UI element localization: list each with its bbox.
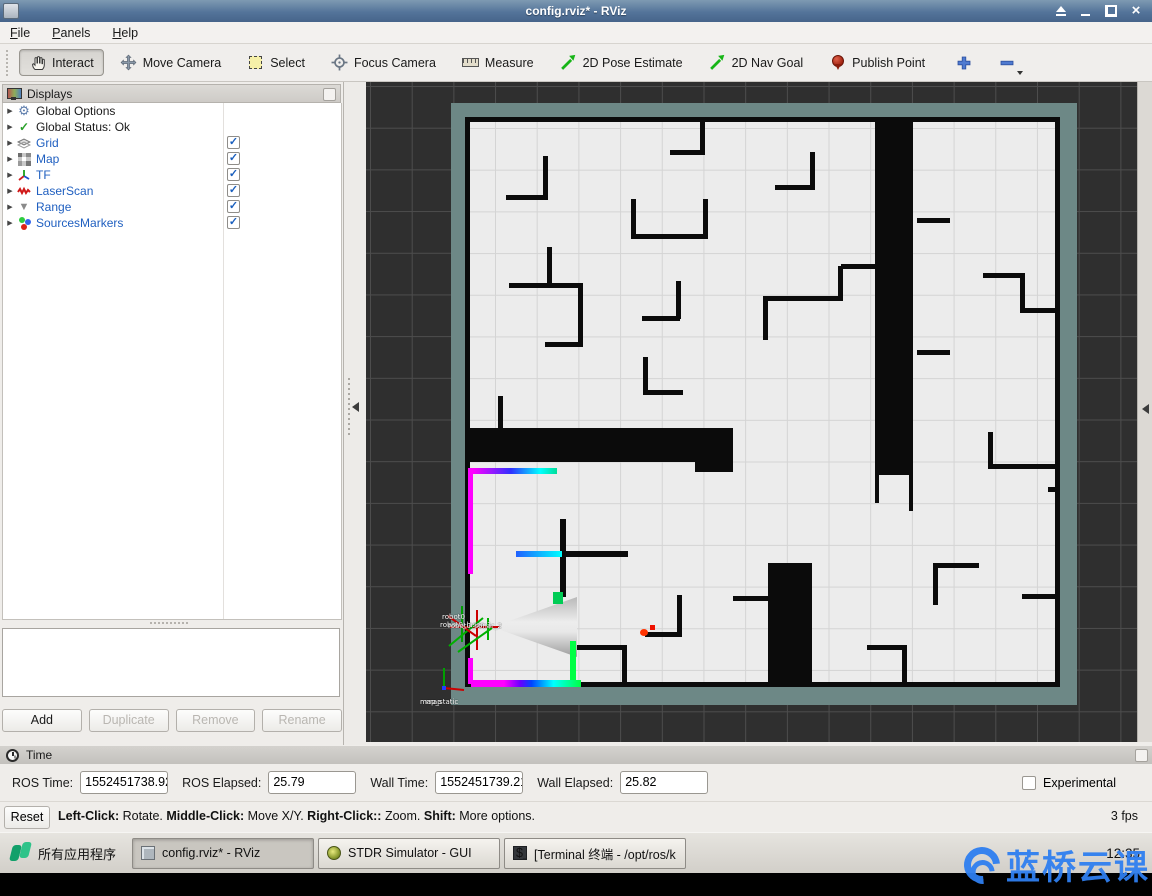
task-stdr-simulator-g[interactable]: STDR Simulator - GUI (318, 838, 500, 869)
map-wall (775, 185, 815, 190)
tool-2d-pose-estimate[interactable]: 2D Pose Estimate (550, 49, 693, 76)
map-wall (506, 195, 548, 200)
display-label: Range (36, 200, 71, 214)
map-wall (509, 283, 583, 288)
map-wall (622, 645, 627, 687)
task-label: STDR Simulator - GUI (348, 846, 472, 860)
tool-move-camera[interactable]: Move Camera (110, 49, 232, 76)
tf-frame-label: robot0 (442, 613, 465, 621)
status-bar: Reset Left-Click: Rotate. Middle-Click: … (0, 801, 1152, 832)
experimental-checkbox[interactable] (1022, 776, 1036, 790)
display-row-laserscan[interactable]: ▶LaserScan✓ (3, 183, 341, 199)
expander-icon[interactable]: ▶ (3, 219, 17, 227)
map-wall (838, 266, 843, 301)
map-wall (983, 273, 1025, 278)
map-wall (867, 645, 907, 650)
time-field-input[interactable]: 1552451738.92 (80, 771, 168, 794)
tool-label: Publish Point (852, 56, 925, 70)
time-panel-float-button[interactable] (1135, 749, 1148, 762)
display-row-grid[interactable]: ▶Grid✓ (3, 135, 341, 151)
map-wall (631, 234, 708, 239)
map-wall (547, 247, 552, 287)
tf-frame-label: robot0_sonar_2 (448, 622, 502, 630)
menu-panels[interactable]: Panels (52, 26, 90, 40)
map-wall (670, 150, 704, 155)
map-wall (768, 563, 812, 687)
tool-label: Move Camera (143, 56, 222, 70)
laser-icon (17, 185, 31, 198)
tool-label: Interact (52, 56, 94, 70)
range-icon: ▼ (17, 201, 31, 214)
map-wall (467, 428, 733, 462)
display-row-global-status-ok[interactable]: ▶✓Global Status: Ok (3, 119, 341, 135)
map-wall (676, 281, 681, 319)
minimize-icon[interactable] (1080, 5, 1092, 17)
3d-viewport[interactable]: robot0robot0_laser_1robot0_sonar_2 mapma… (366, 82, 1137, 742)
green-arrow-icon (560, 54, 577, 71)
display-label: Global Status: Ok (36, 120, 130, 134)
laser-scan-points (553, 592, 563, 604)
hand-icon (29, 54, 46, 71)
map-wall (1048, 487, 1060, 492)
clock-icon (6, 749, 19, 762)
time-field-ros-time: ROS Time:1552451738.92 (12, 771, 168, 794)
map-wall (917, 350, 950, 355)
experimental-label: Experimental (1043, 776, 1116, 790)
time-field-label: Wall Time: (370, 776, 428, 790)
time-field-wall-elapsed: Wall Elapsed:25.82 (537, 771, 708, 794)
expander-icon[interactable]: ▶ (3, 187, 17, 195)
map-wall (1022, 594, 1060, 599)
tf-icon (17, 169, 31, 182)
markers-icon (17, 217, 31, 230)
applications-logo-icon[interactable] (8, 841, 34, 865)
time-field-input[interactable]: 25.79 (268, 771, 356, 794)
applications-menu[interactable]: 所有应用程序 (38, 844, 116, 863)
select-icon (247, 54, 264, 71)
expander-icon[interactable]: ▶ (3, 203, 17, 211)
map-wall (763, 298, 768, 340)
map-wall (643, 390, 683, 395)
display-label: LaserScan (36, 184, 93, 198)
laser-scan-points (473, 468, 557, 474)
display-enabled-checkbox[interactable]: ✓ (227, 152, 240, 165)
map-wall (631, 199, 636, 239)
displays-icon (7, 88, 21, 100)
stdr-icon (327, 846, 341, 860)
display-row-sourcesmarkers[interactable]: ▶SourcesMarkers✓ (3, 215, 341, 231)
display-row-tf[interactable]: ▶TF✓ (3, 167, 341, 183)
map-wall (933, 563, 938, 605)
display-enabled-checkbox[interactable]: ✓ (227, 168, 240, 181)
laser-scan-points (471, 680, 581, 687)
gear-icon: ⚙ (17, 105, 31, 118)
rviz-icon (141, 846, 155, 860)
laser-scan-points (650, 625, 655, 630)
time-field-label: Wall Elapsed: (537, 776, 613, 790)
displays-panel-header[interactable]: Displays (2, 84, 341, 103)
expander-icon[interactable]: ▶ (3, 155, 17, 163)
display-label: Map (36, 152, 59, 166)
displays-panel: Displays ▶⚙Global Options▶✓Global Status… (0, 82, 344, 745)
map-wall (733, 596, 769, 601)
toolbar-drag-handle[interactable] (4, 50, 11, 76)
tool-label: Focus Camera (354, 56, 436, 70)
right-splitter[interactable] (1137, 82, 1152, 742)
watermark-logo-icon (957, 839, 1008, 890)
map-wall (645, 632, 682, 637)
displays-tree: ▶⚙Global Options▶✓Global Status: Ok▶Grid… (2, 103, 342, 620)
map-wall (933, 563, 979, 568)
time-field-label: ROS Time: (12, 776, 73, 790)
tool-select[interactable]: Select (237, 49, 315, 76)
expander-icon[interactable]: ▶ (3, 107, 17, 115)
green-arrow-icon (709, 54, 726, 71)
time-field-input[interactable]: 1552451739.21 (435, 771, 523, 794)
tf-frame-label: map_static (420, 698, 458, 706)
map-wall (703, 199, 708, 239)
map-wall (875, 117, 913, 475)
laser-scan-points (468, 468, 473, 574)
menu-file[interactable]: File (10, 26, 30, 40)
expander-icon[interactable]: ▶ (3, 139, 17, 147)
task-config-rviz-rvi[interactable]: config.rviz* - RViz (132, 838, 314, 869)
time-panel-title: Time (26, 748, 52, 762)
tool-publish-point[interactable]: Publish Point (819, 49, 935, 76)
task-label: config.rviz* - RViz (162, 846, 260, 860)
tool-interact[interactable]: Interact (19, 49, 104, 76)
focus-icon (331, 54, 348, 71)
duplicate-button: Duplicate (89, 709, 169, 732)
menu-help[interactable]: Help (112, 26, 138, 40)
time-field-label: ROS Elapsed: (182, 776, 261, 790)
map-wall (578, 285, 583, 347)
description-splitter-handle[interactable] (150, 621, 190, 626)
move-icon (120, 54, 137, 71)
time-field-ros-elapsed: ROS Elapsed:25.79 (182, 771, 356, 794)
mouse-help-text: Left-Click: Rotate. Middle-Click: Move X… (58, 809, 535, 823)
display-label: Grid (36, 136, 59, 150)
map-wall (642, 316, 680, 321)
map-wall (917, 218, 950, 223)
map-wall (498, 396, 503, 428)
tool-label: Select (270, 56, 305, 70)
map-tf-axes (440, 666, 466, 692)
time-field-input[interactable]: 25.82 (620, 771, 708, 794)
collapse-right-arrow-icon[interactable] (1142, 404, 1149, 414)
tool-focus-camera[interactable]: Focus Camera (321, 49, 446, 76)
pin-icon (829, 54, 846, 71)
map-icon (17, 153, 31, 166)
time-field-wall-time: Wall Time:1552451739.21 (370, 771, 523, 794)
map-wall (902, 645, 907, 687)
title-bar: config.rviz* - RViz × (0, 0, 1152, 22)
map-wall (988, 464, 1058, 469)
map-wall (875, 475, 879, 503)
map-wall (841, 264, 875, 269)
time-panel-header[interactable]: Time (0, 745, 1152, 764)
task-label: [Terminal 终端 - /opt/ros/k… (534, 844, 677, 863)
grid-icon (17, 137, 31, 150)
map-wall (1020, 273, 1025, 313)
map-wall (560, 519, 566, 597)
map-wall (543, 156, 548, 200)
task-terminal-op[interactable]: $_[Terminal 终端 - /opt/ros/k… (504, 838, 686, 869)
measure-icon (462, 54, 479, 71)
laser-scan-points (640, 629, 648, 636)
rename-button: Rename (262, 709, 342, 732)
display-enabled-checkbox[interactable]: ✓ (227, 200, 240, 213)
watermark: 蓝桥云课 (964, 840, 1150, 889)
display-label: Global Options (36, 104, 115, 118)
remove-tool-button[interactable] (998, 54, 1015, 71)
tool-label: 2D Pose Estimate (583, 56, 683, 70)
map-wall (763, 296, 843, 301)
map-wall (575, 645, 627, 650)
add-button[interactable]: Add (2, 709, 82, 732)
menu-bar: FilePanelsHelp (0, 22, 1152, 44)
display-enabled-checkbox[interactable]: ✓ (227, 136, 240, 149)
tool-label: Measure (485, 56, 534, 70)
display-label: SourcesMarkers (36, 216, 123, 230)
terminal-icon: $_ (513, 846, 527, 860)
tool-measure[interactable]: Measure (452, 49, 544, 76)
displays-panel-title: Displays (27, 87, 72, 101)
expander-icon[interactable]: ▶ (3, 123, 17, 131)
panel-float-button[interactable] (323, 88, 336, 101)
map-wall (545, 342, 583, 347)
restore-icon[interactable] (1105, 5, 1117, 17)
window-title: config.rviz* - RViz (0, 4, 1152, 18)
fps-counter: 3 fps (1111, 809, 1138, 823)
map-wall (677, 595, 682, 637)
check-icon: ✓ (17, 121, 31, 134)
shade-window-icon[interactable] (1055, 5, 1067, 17)
display-label: TF (36, 168, 51, 182)
left-splitter[interactable] (344, 82, 366, 745)
remove-button: Remove (176, 709, 256, 732)
display-row-global-options[interactable]: ▶⚙Global Options (3, 103, 341, 119)
map-wall (695, 428, 733, 472)
display-enabled-checkbox[interactable]: ✓ (227, 184, 240, 197)
splitter-dots (348, 378, 350, 438)
reset-button[interactable]: Reset (4, 806, 50, 829)
tool-label: 2D Nav Goal (732, 56, 804, 70)
collapse-left-arrow-icon[interactable] (352, 402, 359, 412)
display-row-map[interactable]: ▶Map✓ (3, 151, 341, 167)
toolbar: InteractMove CameraSelectFocus CameraMea… (0, 44, 1152, 82)
expander-icon[interactable]: ▶ (3, 171, 17, 179)
time-panel-body: ROS Time:1552451738.92ROS Elapsed:25.79W… (0, 764, 1152, 801)
display-description-box (2, 628, 340, 697)
display-enabled-checkbox[interactable]: ✓ (227, 216, 240, 229)
map-wall (909, 475, 913, 511)
tool-dropdown-icon[interactable] (1017, 71, 1023, 75)
close-icon[interactable]: × (1130, 5, 1142, 17)
laser-scan-points (516, 551, 562, 557)
map-wall (1020, 308, 1060, 313)
watermark-text: 蓝桥云课 (1006, 840, 1150, 889)
add-tool-button[interactable] (955, 54, 972, 71)
display-row-range[interactable]: ▶▼Range✓ (3, 199, 341, 215)
tool-2d-nav-goal[interactable]: 2D Nav Goal (699, 49, 814, 76)
